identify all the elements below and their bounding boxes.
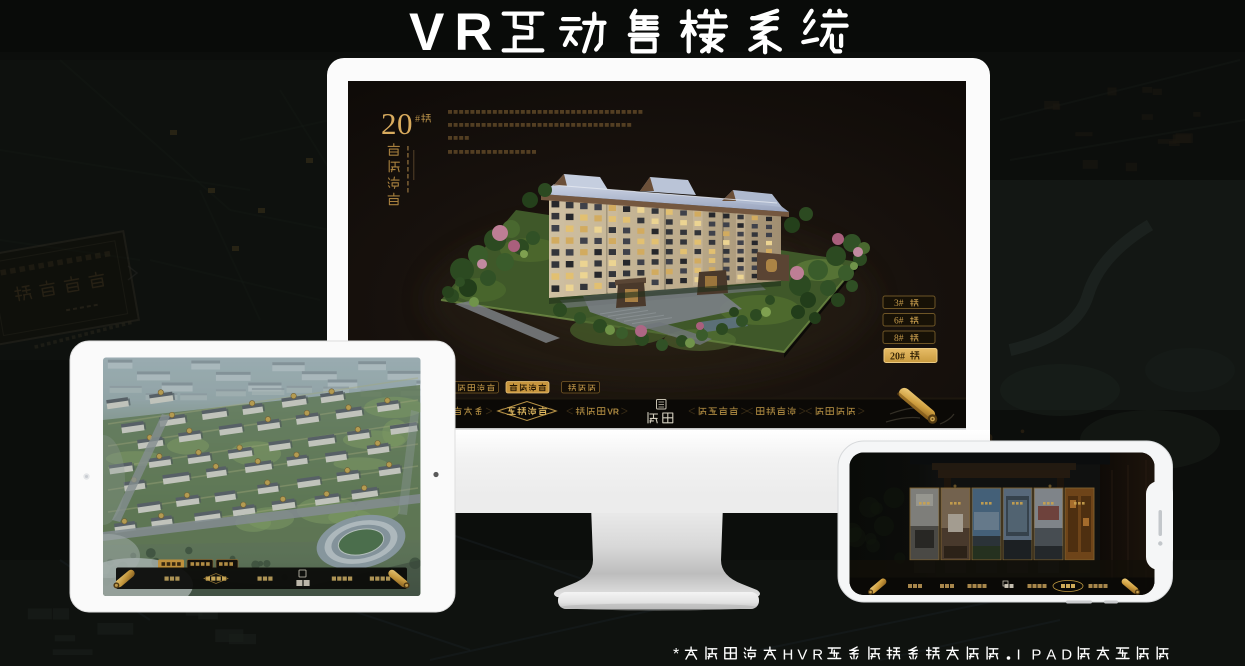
svg-text:20#: 20# — [890, 352, 905, 363]
svg-text:A: A — [1046, 647, 1056, 664]
svg-text:R: R — [812, 647, 823, 664]
svg-text:6#: 6# — [894, 317, 904, 327]
svg-text:*: * — [673, 646, 679, 663]
svg-text:VR: VR — [409, 3, 503, 62]
svg-text:I: I — [1017, 647, 1021, 664]
svg-text:D: D — [1061, 647, 1072, 664]
svg-text:V: V — [797, 647, 807, 664]
svg-text:8#: 8# — [894, 334, 904, 344]
svg-text:20: 20 — [381, 106, 413, 141]
svg-text:H: H — [783, 647, 794, 664]
svg-text:#: # — [415, 114, 420, 125]
svg-text:3#: 3# — [894, 299, 904, 309]
svg-text:P: P — [1031, 647, 1041, 664]
svg-text:VR: VR — [607, 407, 619, 417]
